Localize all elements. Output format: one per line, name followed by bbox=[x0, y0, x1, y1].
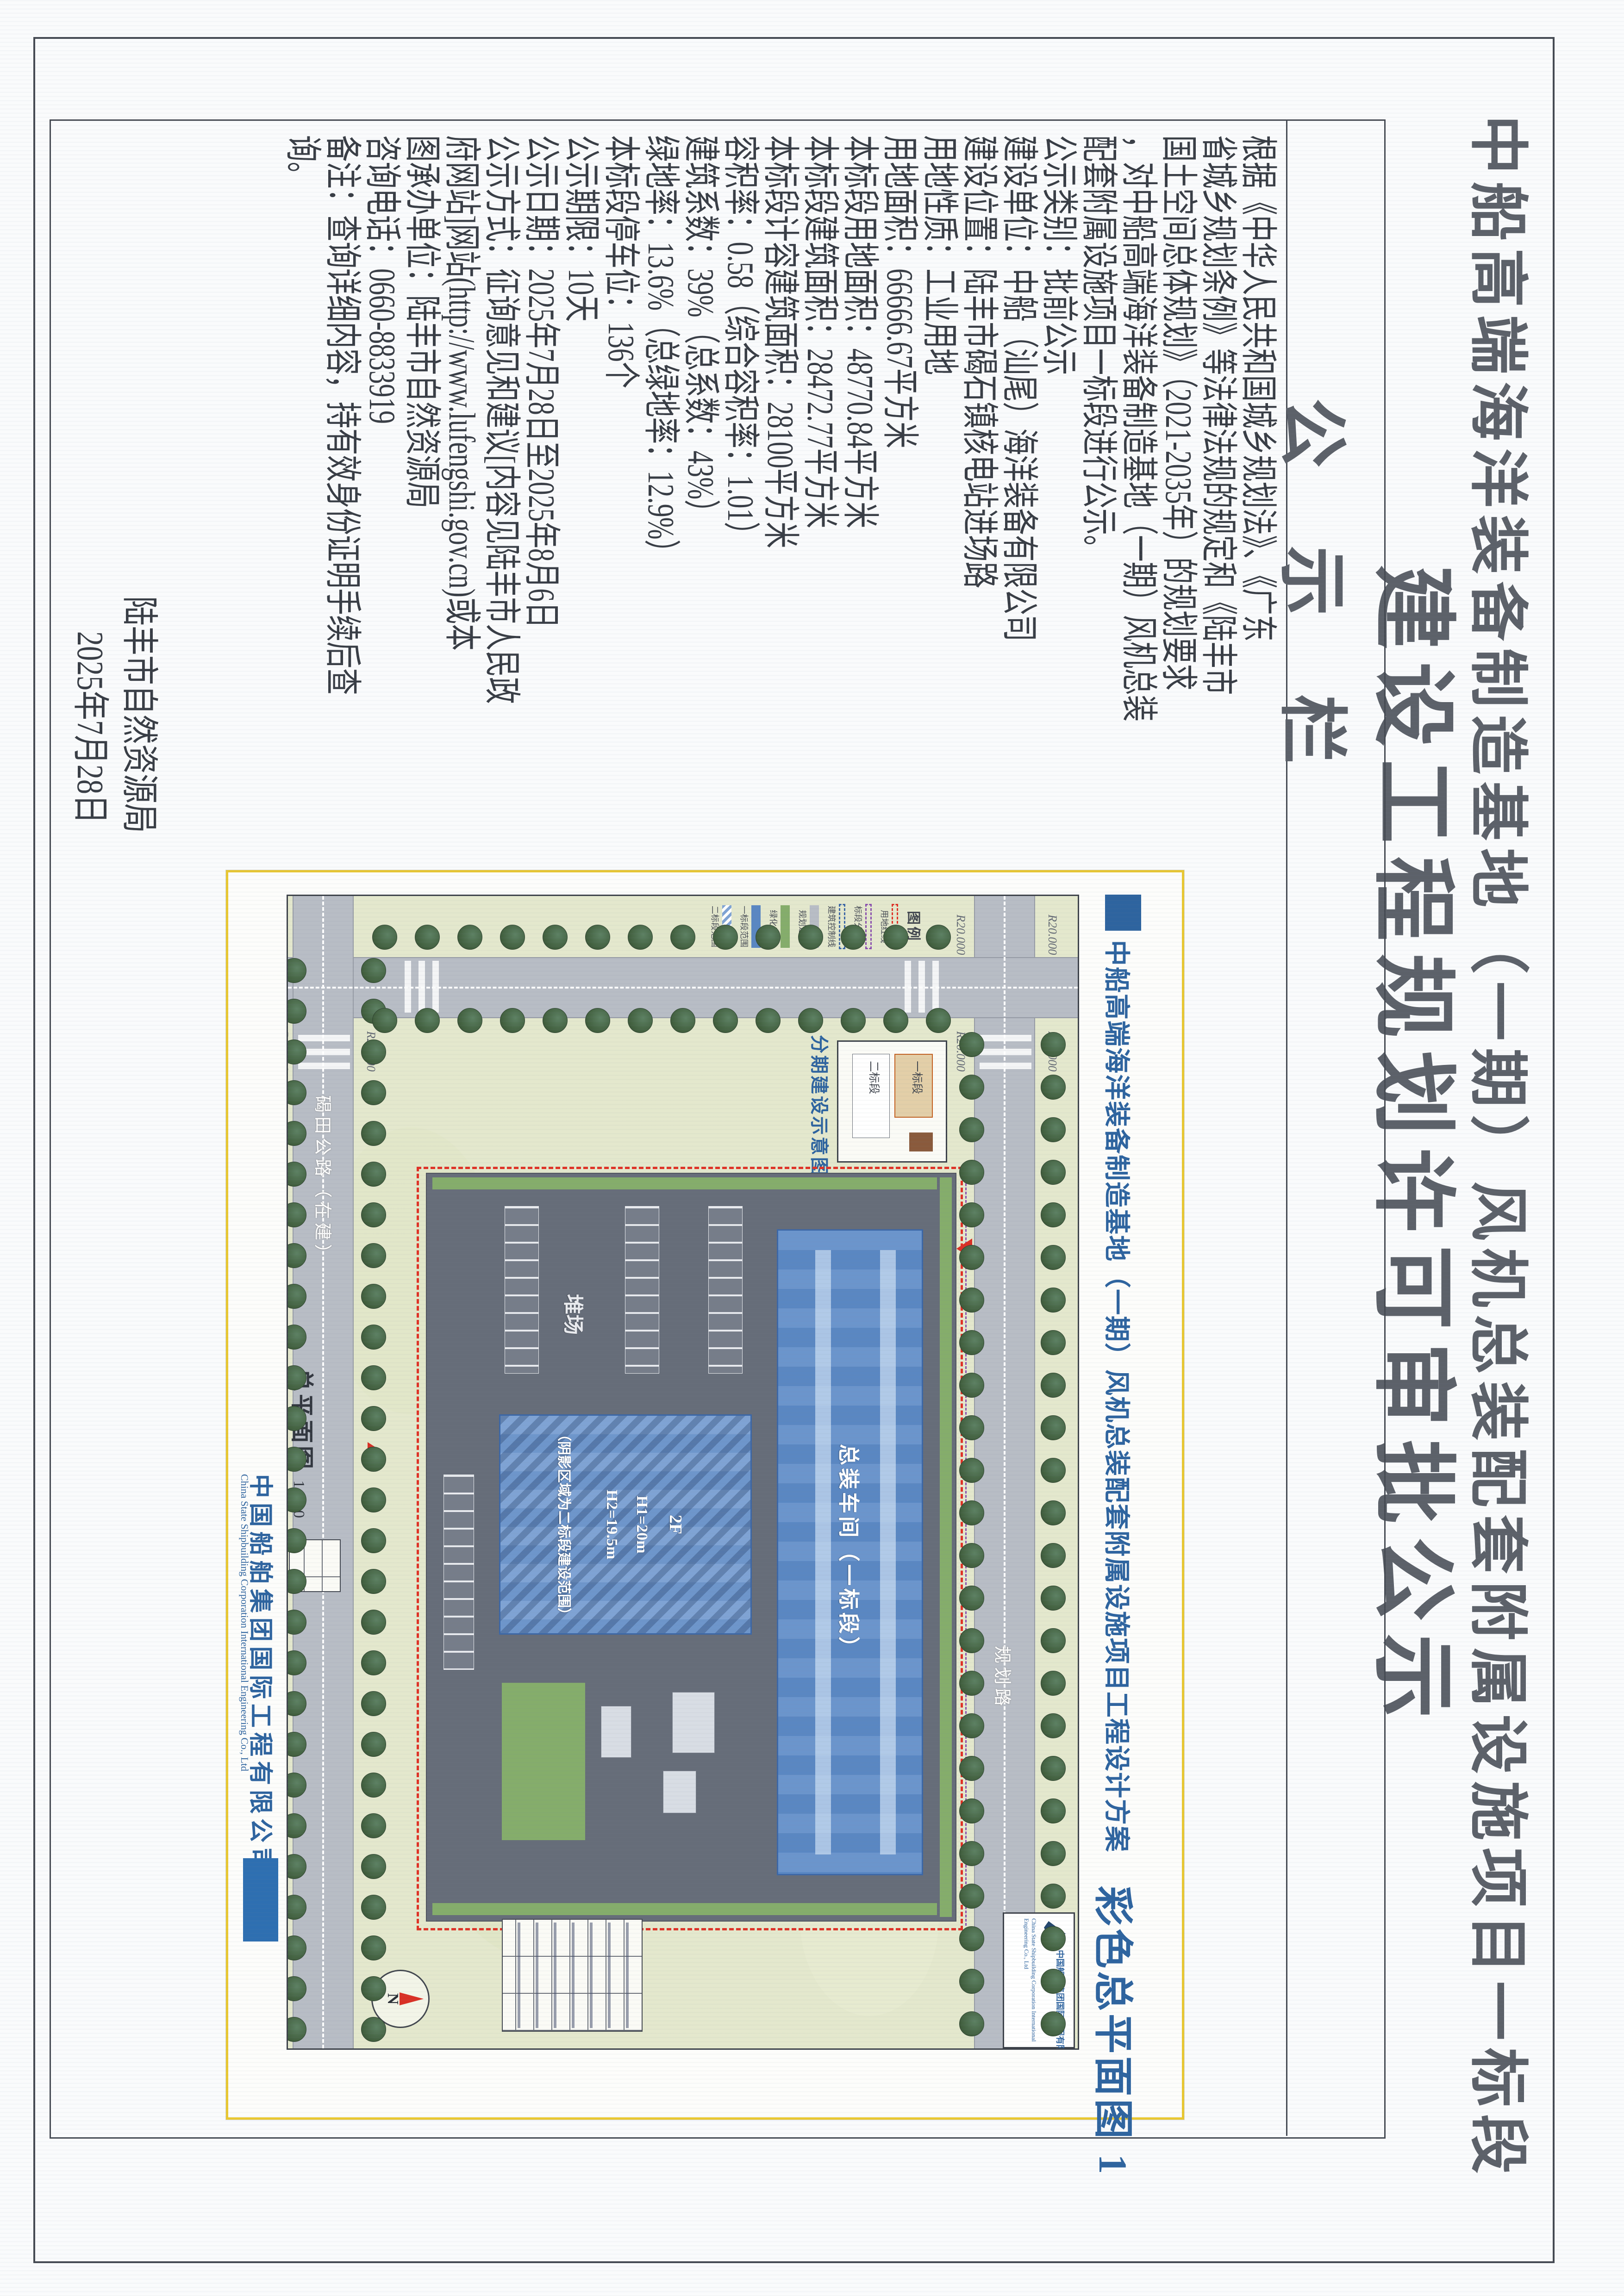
tree-icon bbox=[959, 1798, 984, 1823]
road-north-label: 规划路 bbox=[991, 1646, 1017, 1710]
tree-icon bbox=[1041, 1373, 1066, 1398]
tree-icon bbox=[361, 1487, 386, 1512]
yard-label: 堆场 bbox=[560, 1294, 590, 1335]
legend-item: 建筑控制线 bbox=[825, 897, 845, 956]
tree-icon bbox=[713, 925, 738, 950]
tree-icon bbox=[1041, 1245, 1066, 1270]
yard-lawn-patch bbox=[502, 1683, 585, 1840]
tree-icon bbox=[361, 1976, 386, 2001]
crosswalk bbox=[897, 961, 939, 1013]
tree-icon bbox=[361, 1365, 386, 1390]
tree-icon bbox=[959, 1117, 984, 1142]
company-logo-block bbox=[243, 1858, 278, 1941]
tree-icon bbox=[500, 1008, 525, 1033]
tree-icon bbox=[585, 1008, 610, 1033]
tree-icon bbox=[361, 1325, 386, 1350]
tree-icon bbox=[1041, 1117, 1066, 1142]
notice-line: 备注：查询详细内容，持有效身份证明手续后查 bbox=[322, 135, 362, 655]
crosswalk bbox=[980, 1035, 1031, 1076]
board-label: 公示栏 bbox=[1268, 398, 1368, 842]
tree-icon bbox=[959, 1458, 984, 1483]
building-b-phase2-hall: 2F H1=20m H2=19.5m （阴影区域为二标段建设范围） bbox=[499, 1414, 752, 1635]
tree-icon bbox=[959, 1330, 984, 1355]
tree-icon bbox=[798, 925, 823, 950]
tree-icon bbox=[361, 1447, 386, 1472]
tree-icon bbox=[670, 925, 695, 950]
indicators-table bbox=[502, 1919, 643, 2032]
notice-line: 公示类别：批前公示 bbox=[1039, 135, 1079, 655]
site-plan-sheet: 中船高端海洋装备制造基地（一期）风机总装配套附属设施项目工程设计方案 彩色总平面… bbox=[226, 870, 1184, 2120]
yard-lawn-strip bbox=[432, 1903, 937, 1915]
tree-icon bbox=[959, 1543, 984, 1568]
tree-icon bbox=[959, 1713, 984, 1738]
building-a-skylight bbox=[880, 1250, 896, 1855]
tree-icon bbox=[500, 925, 525, 950]
notice-line: 咨询电话：0660-8833919 bbox=[362, 135, 402, 655]
tree-icon bbox=[361, 1773, 386, 1798]
tree-icon bbox=[361, 2017, 386, 2042]
tree-icon bbox=[1041, 1969, 1066, 1994]
notice-line: 本标段建筑面积：28472.77平方米 bbox=[800, 135, 840, 655]
building-b-h1: H1=20m bbox=[633, 1495, 650, 1553]
tree-icon bbox=[361, 1813, 386, 1838]
notice-line: 本标段计容建筑面积：28100平方米 bbox=[760, 135, 800, 655]
tree-icon bbox=[959, 1586, 984, 1611]
tree-icon bbox=[543, 1008, 568, 1033]
tree-icon bbox=[1041, 1032, 1066, 1057]
building-b-h2: H2=19.5m bbox=[603, 1490, 620, 1560]
building-a-label: 总装车间（一标段） bbox=[835, 1444, 865, 1661]
tree-icon bbox=[959, 1245, 984, 1270]
tree-icon bbox=[926, 1008, 951, 1033]
tree-icon bbox=[1041, 1288, 1066, 1313]
company-name-cn: 中国船舶集团国际工程有限公司 bbox=[245, 1474, 280, 1876]
tree-icon bbox=[361, 1080, 386, 1105]
tree-icon bbox=[361, 1935, 386, 1960]
tree-icon bbox=[1041, 1841, 1066, 1866]
tree-icon bbox=[585, 925, 610, 950]
sheet-name: 彩色总平面图 1 bbox=[1088, 1886, 1146, 2177]
phase-zone-a-label: 一标段 bbox=[910, 1061, 926, 1094]
parking-row bbox=[505, 1206, 539, 1374]
tree-icon bbox=[1041, 1500, 1066, 1525]
tree-icon bbox=[457, 925, 482, 950]
signature-organization: 陆丰市自然资源局 bbox=[116, 544, 169, 833]
tree-icon bbox=[959, 1756, 984, 1781]
notice-line: 容积率：0.58（综合容积率：1.01） bbox=[720, 135, 760, 655]
notice-line: 国土空间总体规划》（2021-2035年）的规划要求 bbox=[1158, 135, 1198, 655]
phase-aux-block bbox=[909, 1132, 933, 1151]
tree-icon bbox=[959, 1415, 984, 1440]
tree-icon bbox=[361, 1406, 386, 1431]
tree-icon bbox=[798, 1008, 823, 1033]
tree-icon bbox=[756, 1008, 781, 1033]
yard-lawn-strip bbox=[432, 1177, 937, 1189]
tree-icon bbox=[883, 925, 908, 950]
tree-icon bbox=[361, 1039, 386, 1064]
landscape-document: 中船高端海洋装备制造基地（一期）风机总装配套附属设施项目一标段 建设工程规划许可… bbox=[0, 0, 1624, 2296]
notice-line: 建设位置：陆丰市碣石镇核电站进场路 bbox=[959, 135, 999, 655]
notice-line: 绿地率：13.6%（总绿地率：12.9%） bbox=[641, 135, 681, 655]
scanned-notice-page: 中船高端海洋装备制造基地（一期）风机总装配套附属设施项目一标段 建设工程规划许可… bbox=[0, 0, 1624, 2296]
notice-line: 根据《中华人民共和国城乡规划法》、《广东 bbox=[1238, 135, 1278, 655]
tree-icon bbox=[841, 1008, 866, 1033]
tree-icon bbox=[713, 1008, 738, 1033]
notice-line: 公示日期：2025年7月28日至2025年8月6日 bbox=[521, 135, 561, 655]
tree-icon bbox=[361, 1650, 386, 1675]
legend-swatch bbox=[865, 904, 872, 949]
notice-line: 本标段停车位：136个 bbox=[601, 135, 641, 655]
radius-label: R20.000 bbox=[954, 915, 968, 955]
legend-title: 图例 bbox=[905, 897, 925, 956]
indicators-table-entries bbox=[505, 1923, 641, 2028]
tree-icon bbox=[1041, 1756, 1066, 1781]
tree-icon bbox=[1041, 1543, 1066, 1568]
tree-icon bbox=[1041, 1713, 1066, 1738]
tree-icon bbox=[628, 1008, 653, 1033]
tree-icon bbox=[756, 925, 781, 950]
tree-icon bbox=[361, 1691, 386, 1716]
tree-icon bbox=[1041, 1330, 1066, 1355]
tree-icon bbox=[841, 925, 866, 950]
tree-icon bbox=[361, 1854, 386, 1879]
tree-icon bbox=[1041, 1458, 1066, 1483]
tree-icon bbox=[457, 1008, 482, 1033]
tree-icon bbox=[372, 1008, 397, 1033]
tree-icon bbox=[959, 1288, 984, 1313]
phasing-inset: 一标段 二标段 bbox=[837, 1040, 947, 1163]
building-a-skylight bbox=[815, 1250, 831, 1855]
legend-label: 一标段范围 bbox=[738, 900, 750, 953]
legend-item: 一标段范围 bbox=[738, 897, 761, 956]
tree-icon bbox=[361, 1610, 386, 1635]
tree-icon bbox=[959, 1841, 984, 1866]
tree-icon bbox=[628, 925, 653, 950]
tree-icon bbox=[415, 1008, 440, 1033]
notice-line: 图承办单位：陆丰市自然资源局 bbox=[402, 135, 442, 655]
plan-drawing-area: R20.000 R20.000 R20.000 R20.000 R20.000 … bbox=[287, 895, 1079, 2050]
tree-icon bbox=[959, 1500, 984, 1525]
compass-needle bbox=[400, 1992, 424, 2005]
tree-icon bbox=[361, 1732, 386, 1757]
notice-line: 公示期限：10天 bbox=[561, 135, 601, 655]
tree-icon bbox=[361, 1895, 386, 1920]
yard-lawn-strip bbox=[940, 1177, 952, 1917]
building-b-note: （阴影区域为二标段建设范围） bbox=[555, 1427, 575, 1622]
phasing-inset-label: 分期建设示意图 bbox=[807, 1035, 834, 1177]
notice-line: 建设单位：中船（汕尾）海洋装备有限公司 bbox=[999, 135, 1039, 655]
tree-icon bbox=[1041, 1798, 1066, 1823]
tree-icon bbox=[1041, 1671, 1066, 1696]
radius-label: R20.000 bbox=[1045, 915, 1059, 955]
compass-n-label: N bbox=[384, 1993, 401, 2005]
road-south-label: 碣田公路（在建） bbox=[312, 1095, 337, 1265]
tree-icon bbox=[361, 1284, 386, 1309]
tree-icon bbox=[1041, 1415, 1066, 1440]
crosswalk bbox=[397, 961, 439, 1013]
tree-icon bbox=[543, 925, 568, 950]
tree-icon bbox=[1041, 1628, 1066, 1653]
tree-icon bbox=[361, 1202, 386, 1227]
tree-icon bbox=[1041, 1160, 1066, 1185]
site-yard: 总装车间（一标段） 2F H1=20m H2=19.5m （阴影区域为二标段建设… bbox=[426, 1173, 956, 1922]
company-name-en: China State Shipbuilding Corporation Int… bbox=[238, 1474, 250, 1771]
tree-icon bbox=[670, 1008, 695, 1033]
tree-icon bbox=[883, 1008, 908, 1033]
tree-icon bbox=[361, 1121, 386, 1146]
tree-icon bbox=[361, 958, 386, 983]
notice-line: 用地性质：工业用地 bbox=[919, 135, 959, 655]
tree-icon bbox=[415, 925, 440, 950]
notice-line: 省城乡规划条例》等法律法规的规定和《陆丰市 bbox=[1198, 135, 1238, 655]
tree-icon bbox=[1041, 1926, 1066, 1951]
parking-row bbox=[443, 1475, 474, 1670]
tree-icon bbox=[959, 1671, 984, 1696]
sheet-project-title: 中船高端海洋装备制造基地（一期）风机总装配套附属设施项目工程设计方案 bbox=[1100, 940, 1137, 1853]
signature-date: 2025年7月28日 bbox=[67, 542, 120, 824]
tree-icon bbox=[959, 1884, 984, 1909]
tree-icon bbox=[959, 1926, 984, 1951]
notice-line: 询。 bbox=[282, 135, 322, 655]
tree-icon bbox=[959, 2011, 984, 2036]
tree-icon bbox=[361, 1569, 386, 1594]
tree-icon bbox=[959, 1373, 984, 1398]
parking-row bbox=[708, 1206, 743, 1374]
tree-icon bbox=[1041, 1586, 1066, 1611]
aux-structure bbox=[663, 1771, 696, 1813]
corner-company-en: China State Shipbuilding Corporation Int… bbox=[1023, 1918, 1037, 2043]
building-a-assembly-hall: 总装车间（一标段） bbox=[777, 1229, 923, 1875]
phase-zone-b-label: 二标段 bbox=[867, 1061, 883, 1094]
notice-body: 根据《中华人民共和国城乡规划法》、《广东省城乡规划条例》等法律法规的规定和《陆丰… bbox=[282, 135, 1278, 857]
tree-icon bbox=[959, 1628, 984, 1653]
notice-line: 配套附属设施项目一标段进行公示。 bbox=[1079, 135, 1118, 655]
tree-icon bbox=[959, 1202, 984, 1227]
tree-icon bbox=[372, 925, 397, 950]
tree-icon bbox=[361, 1162, 386, 1187]
tree-icon bbox=[1041, 1202, 1066, 1227]
tree-icon bbox=[959, 1160, 984, 1185]
tree-icon bbox=[959, 1969, 984, 1994]
tree-icon bbox=[959, 1075, 984, 1100]
notice-line: ，对中船高端海洋装备制造基地（一期）风机总装 bbox=[1118, 135, 1158, 655]
notice-line: 府网站]网站(http://www.lufengshi.gov.cn)或本 bbox=[442, 135, 481, 655]
tree-icon bbox=[1041, 2011, 1066, 2036]
legend-label: 建筑控制线 bbox=[826, 900, 838, 953]
notice-line: 用地面积：66666.67平方米 bbox=[880, 135, 919, 655]
tree-icon bbox=[959, 1032, 984, 1057]
building-b-floors: 2F bbox=[665, 1515, 686, 1534]
crosswalk bbox=[298, 1035, 350, 1076]
notice-line: 建筑系数：39%（总系数：43%） bbox=[681, 135, 720, 655]
legend-swatch bbox=[781, 905, 790, 948]
tree-icon bbox=[361, 1243, 386, 1268]
tree-icon bbox=[361, 1528, 386, 1553]
notice-line: 本标段用地面积：48770.84平方米 bbox=[840, 135, 880, 655]
header-blue-square-icon bbox=[1105, 895, 1141, 931]
aux-structure bbox=[672, 1692, 715, 1753]
tree-icon bbox=[926, 925, 951, 950]
aux-structure bbox=[601, 1706, 631, 1758]
parking-row bbox=[625, 1206, 659, 1374]
tree-icon bbox=[1041, 1075, 1066, 1100]
tree-icon bbox=[1041, 1884, 1066, 1909]
notice-line: 公示方式：征询意见和建议[内容见陆丰市人民政 bbox=[481, 135, 521, 655]
